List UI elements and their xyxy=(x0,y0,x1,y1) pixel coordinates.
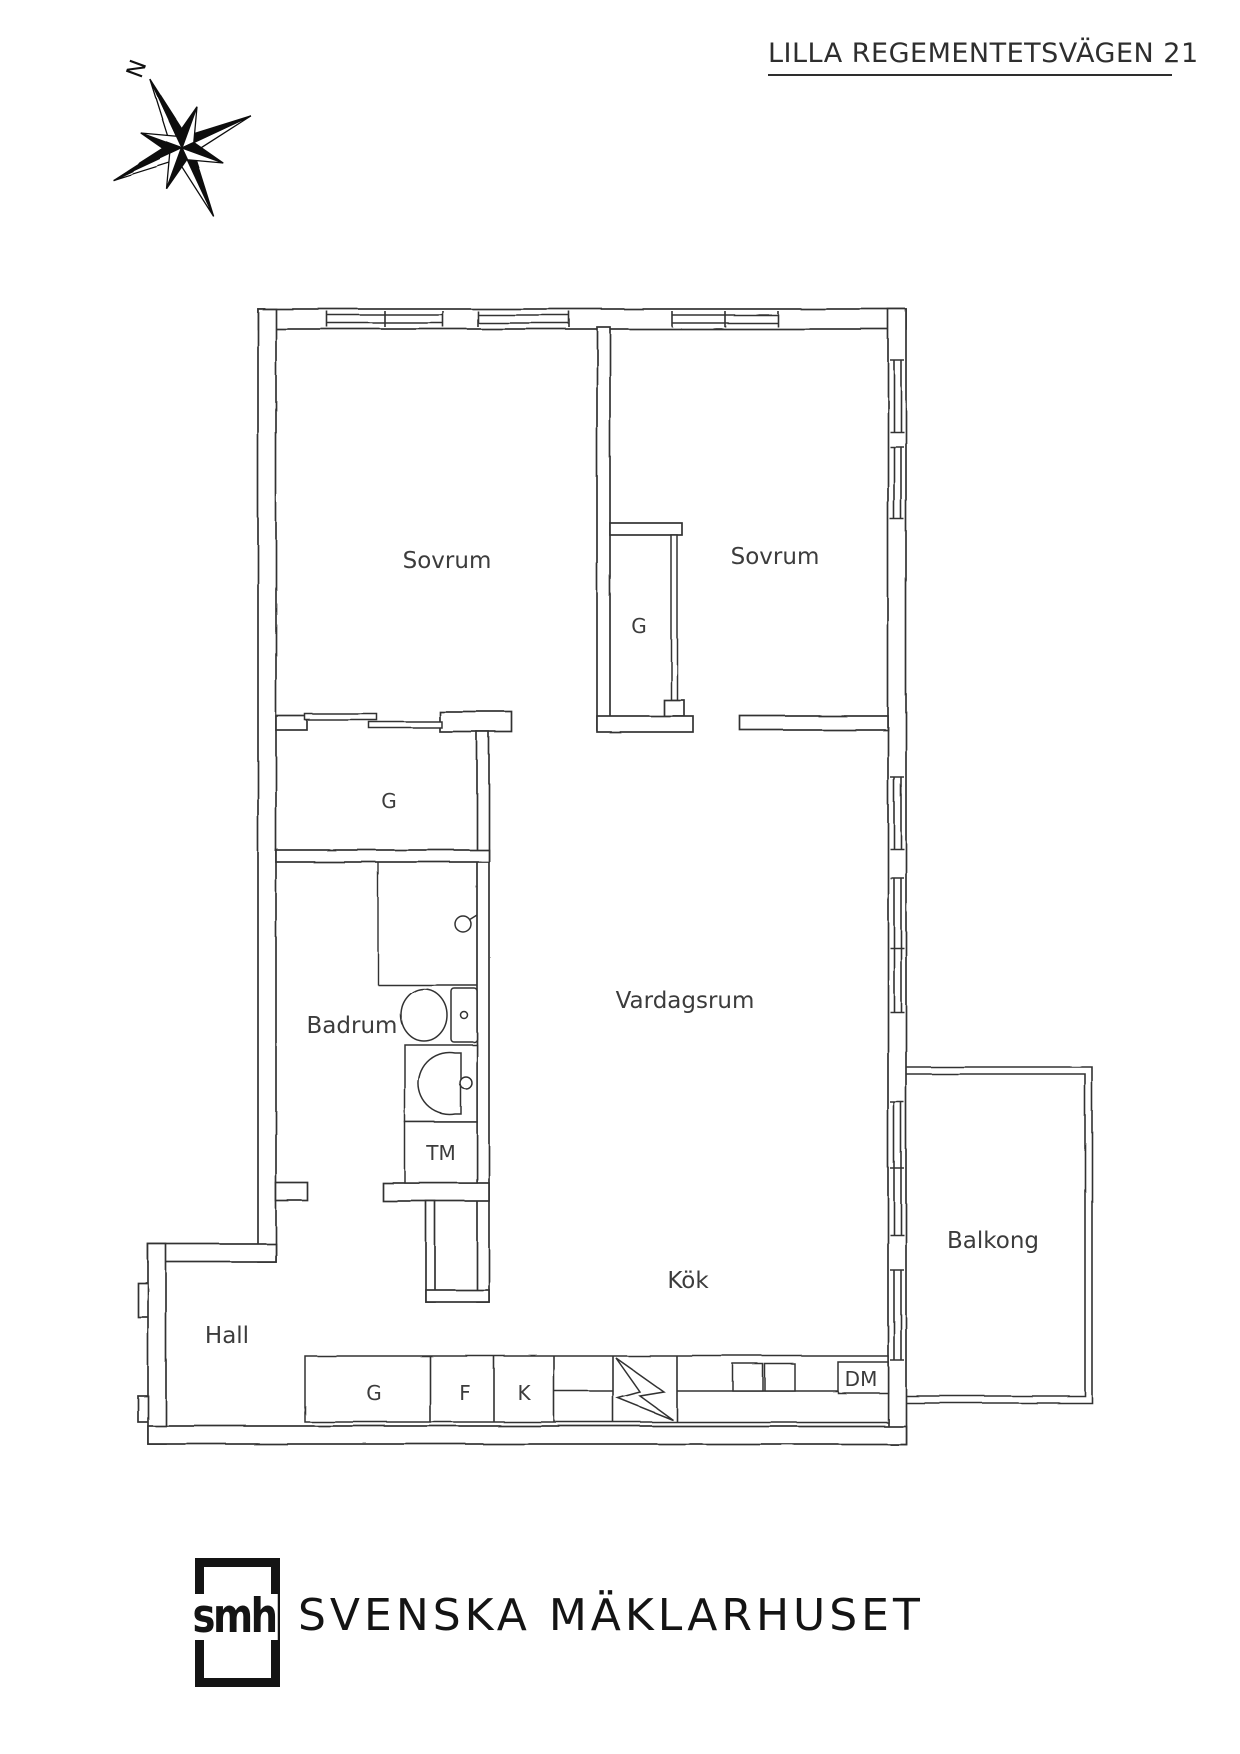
logo-monogram: smh xyxy=(190,1594,278,1640)
room-label-sovrum-left: Sovrum xyxy=(403,548,492,574)
label-wardrobe-left: G xyxy=(381,789,397,813)
wall-badrum-south-stub xyxy=(276,1183,308,1201)
label-wardrobe-mid: G xyxy=(631,614,647,638)
window-top-2 xyxy=(478,311,569,328)
wall-peninsula xyxy=(426,1201,435,1302)
logo-brand-name: SVENSKA MÄKLARHUSET xyxy=(298,1590,924,1641)
wall-wardrobe-nub xyxy=(276,716,307,730)
room-label-sovrum-right: Sovrum xyxy=(731,544,820,570)
shower-head-icon xyxy=(455,916,471,932)
window-top-1 xyxy=(327,311,443,328)
window-top-3 xyxy=(672,311,778,328)
wall-exterior-bottom xyxy=(148,1426,906,1444)
toilet-bowl-icon xyxy=(401,989,447,1041)
wall-closet-left-south xyxy=(276,850,489,862)
window-right-3 xyxy=(890,777,905,849)
wall-closet-south xyxy=(597,716,693,732)
sink-tap-icon xyxy=(460,1077,472,1089)
wall-badrum-south xyxy=(383,1183,489,1201)
label-fridge-f: F xyxy=(459,1381,471,1405)
wall-exterior-hall-left xyxy=(148,1244,166,1444)
sliding-door-panel-1 xyxy=(305,714,377,720)
agency-logo: smh SVENSKA MÄKLARHUSET xyxy=(195,1558,280,1687)
window-right-4 xyxy=(890,878,905,1012)
window-right-2 xyxy=(890,447,905,519)
label-dishwasher-dm: DM xyxy=(845,1367,878,1391)
walls-group xyxy=(138,309,906,1444)
label-freezer-k: K xyxy=(517,1381,531,1405)
shower-arm xyxy=(469,915,477,920)
cabinet-row-outline xyxy=(305,1356,888,1422)
compass-rose-icon xyxy=(81,47,283,249)
wall-exterior-left xyxy=(258,309,276,1262)
room-label-vardagsrum: Vardagsrum xyxy=(616,988,755,1014)
windows-group xyxy=(327,311,905,1361)
wall-exterior-step xyxy=(148,1244,276,1262)
closet-door-foot xyxy=(664,700,684,716)
wall-tcap xyxy=(440,712,512,732)
room-label-kok: Kök xyxy=(667,1268,709,1294)
floorplan-canvas: N xyxy=(0,0,1240,1754)
closet-door-leaf xyxy=(671,535,677,700)
kitchen-cabinet-row xyxy=(305,1356,888,1422)
sink-basin-right xyxy=(765,1364,795,1391)
room-label-hall: Hall xyxy=(205,1323,249,1349)
wall-closet-cap xyxy=(610,523,682,535)
window-right-1 xyxy=(890,360,905,432)
wall-badrum-east xyxy=(477,732,489,1302)
wall-bedroom-divider xyxy=(597,327,610,730)
balcony-door xyxy=(890,1270,905,1360)
room-labels: Sovrum Sovrum Vardagsrum Badrum Kök Hall… xyxy=(205,544,1039,1405)
wall-sovrum-right-south xyxy=(740,716,888,730)
compass-north-label: N xyxy=(122,56,152,81)
room-label-balkong: Balkong xyxy=(947,1228,1039,1254)
window-balcony xyxy=(890,1102,905,1235)
toilet-button-icon xyxy=(461,1012,468,1019)
room-label-badrum: Badrum xyxy=(307,1013,398,1039)
label-cabinet-g: G xyxy=(366,1381,382,1405)
sink-basin-left xyxy=(733,1364,763,1391)
sliding-door-panel-2 xyxy=(369,722,442,728)
label-washing-machine: TM xyxy=(425,1141,455,1165)
wall-peninsula-cap xyxy=(426,1290,489,1302)
